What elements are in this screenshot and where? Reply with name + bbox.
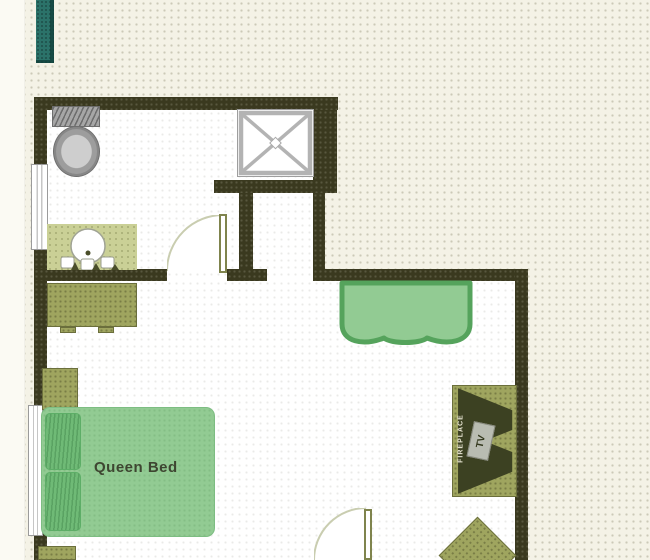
window-bathroom [31, 164, 48, 250]
wall-bathroom-south [34, 269, 167, 281]
wall-closet-foot [227, 269, 267, 281]
tv-fireplace-console: TV FIREPLACE [452, 385, 517, 497]
dresser-foot [98, 327, 114, 333]
sofa [336, 280, 476, 348]
toilet-tank [52, 106, 100, 127]
bathroom-door-swing [167, 215, 223, 272]
nightstand [42, 368, 78, 410]
teal-accent-bar [36, 0, 54, 63]
floor-plan-canvas: Queen Bed TV FIREPLACE [0, 0, 650, 560]
bathroom-door-leaf [219, 214, 227, 273]
dresser [47, 283, 137, 327]
pillow [45, 413, 81, 470]
wall-closet-left [239, 193, 253, 269]
sink-icon [47, 224, 137, 270]
wall-closet-right [313, 193, 325, 269]
nightstand [38, 546, 76, 560]
toilet-bowl [53, 126, 100, 177]
dresser-foot [60, 327, 76, 333]
entry-door-leaf [364, 509, 372, 560]
shower-icon [236, 108, 315, 178]
wall-below-shower [214, 180, 330, 193]
tv-label: TV [474, 434, 487, 449]
pillow [45, 472, 81, 531]
entry-door-swing [314, 508, 366, 560]
page-margin-strip [0, 0, 25, 560]
